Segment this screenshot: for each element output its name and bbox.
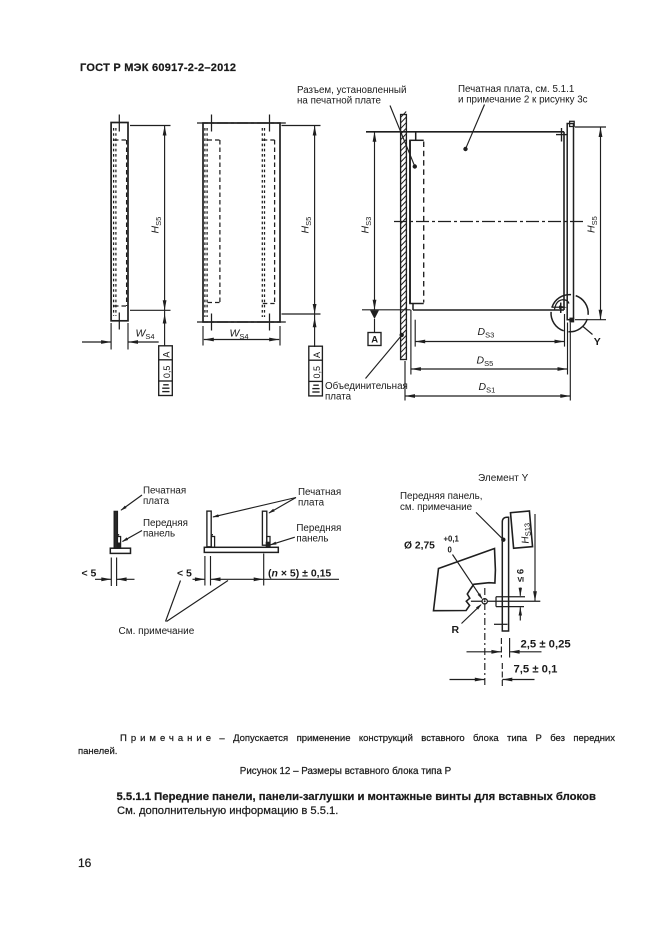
- svg-text:плата: плата: [325, 392, 352, 403]
- svg-text:плата: плата: [143, 496, 170, 507]
- svg-text:плата: плата: [298, 498, 325, 509]
- svg-text:и примечание 2 к рисунку 3с: и примечание 2 к рисунку 3с: [458, 95, 588, 106]
- svg-text:Ø 2,75: Ø 2,75: [404, 541, 435, 552]
- svg-text:+0,1: +0,1: [444, 535, 460, 544]
- svg-text:≤ 6: ≤ 6: [516, 569, 527, 582]
- svg-text:HS3: HS3: [360, 217, 374, 234]
- svg-text:0,5: 0,5: [312, 366, 322, 379]
- svg-text:Печатная: Печатная: [298, 487, 341, 498]
- svg-text:DS1: DS1: [479, 381, 496, 395]
- svg-text:Печатная: Печатная: [143, 486, 186, 497]
- svg-text:< 5: < 5: [82, 568, 97, 580]
- svg-text:7,5 ± 0,1: 7,5 ± 0,1: [514, 664, 558, 676]
- svg-text:R: R: [452, 624, 460, 636]
- svg-text:Передняя: Передняя: [143, 518, 188, 529]
- svg-text:WS4: WS4: [136, 328, 155, 342]
- svg-text:A: A: [312, 352, 322, 358]
- svg-text:HS5: HS5: [586, 216, 600, 233]
- svg-text:Y: Y: [594, 336, 601, 348]
- svg-text:DS5: DS5: [477, 355, 494, 369]
- svg-text:на печатной плате: на печатной плате: [297, 96, 382, 107]
- svg-text:A: A: [162, 352, 172, 358]
- svg-text:Передняя: Передняя: [296, 523, 341, 534]
- svg-text:0: 0: [448, 546, 453, 555]
- svg-text:2,5 ± 0,25: 2,5 ± 0,25: [521, 639, 571, 651]
- svg-text:WS4: WS4: [230, 328, 249, 342]
- svg-text:Элемент Y: Элемент Y: [478, 473, 529, 484]
- svg-text:A: A: [371, 335, 378, 346]
- svg-text:См. примечание: См. примечание: [119, 626, 195, 637]
- svg-text:Печатная плата, см. 5.1.1: Печатная плата, см. 5.1.1: [458, 84, 574, 95]
- svg-text:< 5: < 5: [177, 568, 192, 580]
- svg-text:см. примечание: см. примечание: [400, 502, 473, 513]
- svg-text:(n × 5) ± 0,15: (n × 5) ± 0,15: [268, 568, 331, 580]
- svg-text:HS13: HS13: [519, 523, 533, 545]
- svg-text:Объединительная: Объединительная: [325, 381, 408, 392]
- svg-text:Разъем, установленный: Разъем, установленный: [297, 85, 406, 96]
- svg-text:HS5: HS5: [150, 217, 164, 234]
- svg-text:HS5: HS5: [300, 217, 314, 234]
- svg-text:DS3: DS3: [478, 326, 495, 340]
- svg-text:Передняя панель,: Передняя панель,: [400, 491, 482, 502]
- svg-text:панель: панель: [143, 529, 175, 540]
- svg-text:0,5: 0,5: [162, 366, 172, 379]
- svg-text:панель: панель: [296, 534, 328, 545]
